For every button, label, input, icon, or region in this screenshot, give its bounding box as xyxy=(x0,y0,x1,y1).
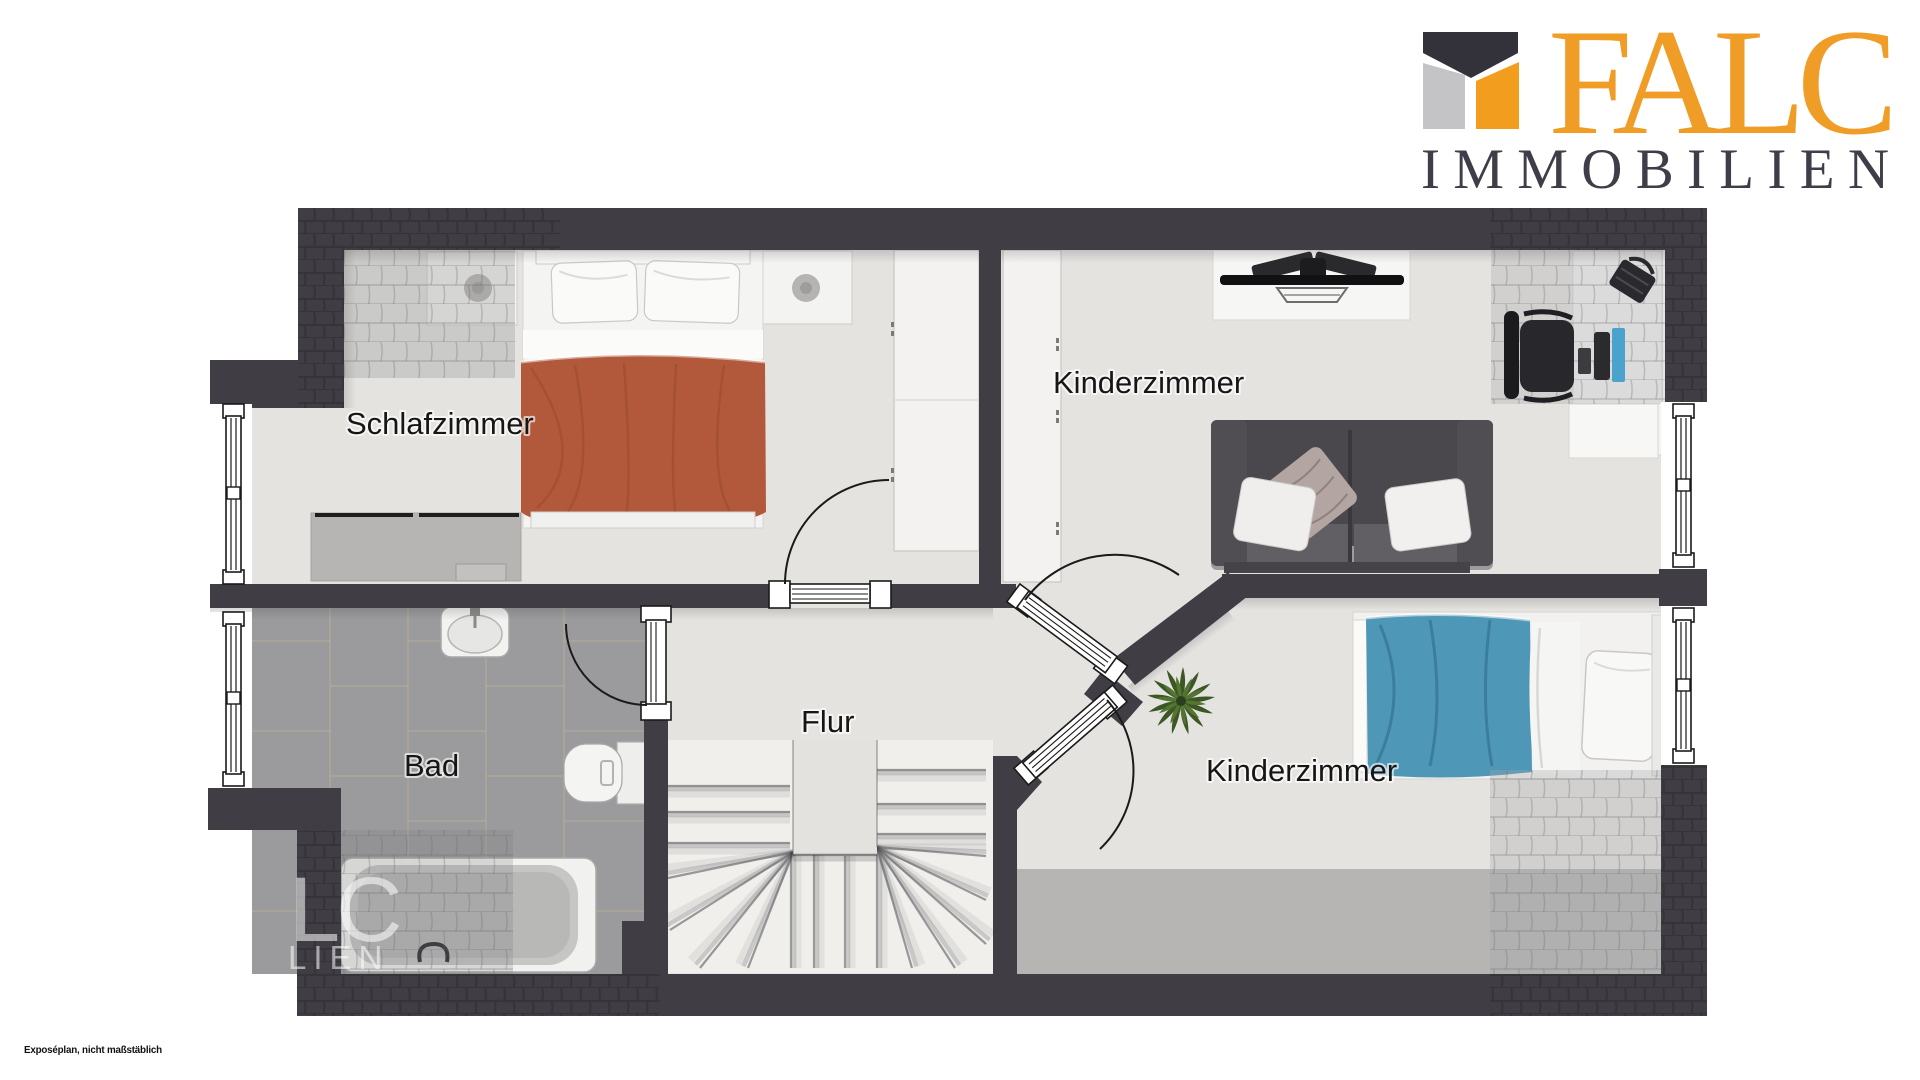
svg-text:Flur: Flur xyxy=(801,704,854,739)
svg-text:Exposéplan, nicht maßstäblich: Exposéplan, nicht maßstäblich xyxy=(24,1045,162,1056)
svg-text:Kinderzimmer: Kinderzimmer xyxy=(1206,753,1397,788)
svg-text:Kinderzimmer: Kinderzimmer xyxy=(1053,365,1244,400)
svg-text:IMMOBILIEN: IMMOBILIEN xyxy=(1421,138,1902,201)
svg-text:Schlafzimmer: Schlafzimmer xyxy=(346,406,534,441)
svg-text:Bad: Bad xyxy=(404,748,459,783)
svg-text:LIEN: LIEN xyxy=(288,939,389,976)
